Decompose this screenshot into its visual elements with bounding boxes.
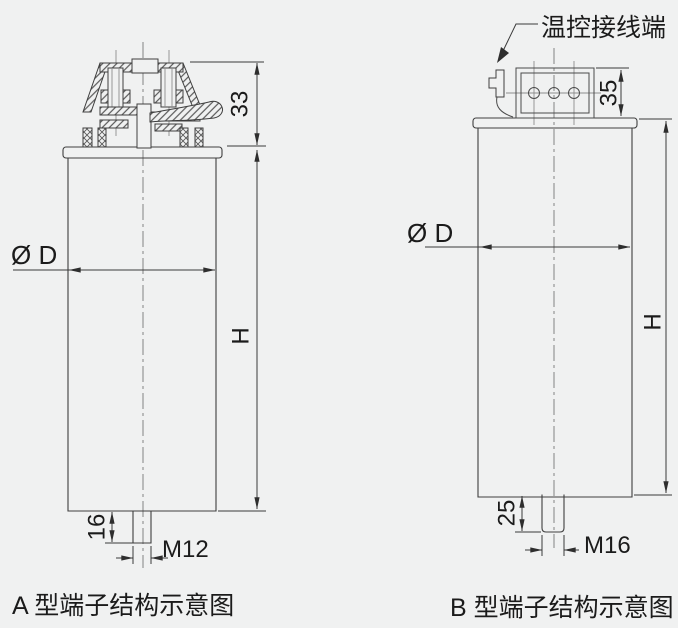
dimension-stud-length-a: 16 <box>84 512 135 543</box>
capacitor-body-b <box>473 118 637 497</box>
caption-figure-b: B 型端子结构示意图 <box>450 594 674 622</box>
dim-25-label: 25 <box>494 500 521 527</box>
terminal-a-bolt-right <box>154 68 183 107</box>
technical-drawing-page: 33 H Ø D 16 M12 A 型端子结构示意图 <box>0 0 678 628</box>
figure-b: 温控接线端 35 H Ø D 25 <box>407 14 674 622</box>
terminal-a-cap-center <box>132 59 158 73</box>
dimension-thread-a: M12 <box>116 536 209 564</box>
diagram-canvas: 33 H Ø D 16 M12 A 型端子结构示意图 <box>0 0 678 628</box>
dimension-terminal-height-b: 35 <box>596 68 630 116</box>
dimension-diameter-b: Ø D <box>407 218 630 248</box>
terminal-assembly-a <box>83 59 223 148</box>
thermal-connector-wire <box>497 97 513 117</box>
dim-h-label-b: H <box>640 313 667 330</box>
bottom-stud-a <box>133 511 151 543</box>
dim-diameter-label-b: Ø D <box>407 218 453 248</box>
annotation-arrowhead <box>497 47 509 63</box>
dim-diameter-label-a: Ø D <box>11 240 57 270</box>
dim-33-label: 33 <box>227 91 254 118</box>
caption-figure-a: A 型端子结构示意图 <box>12 592 234 620</box>
dim-35-label: 35 <box>596 80 623 107</box>
centerline-b <box>506 48 601 548</box>
dim-m16-label: M16 <box>584 532 631 559</box>
dim-m12-label: M12 <box>162 536 209 563</box>
dimension-stud-length-b: 25 <box>494 496 542 532</box>
terminal-a-center-post <box>137 104 151 148</box>
dimension-height-a: H <box>218 150 266 511</box>
thermal-connector-b <box>489 70 513 117</box>
dim-16-label: 16 <box>84 514 111 541</box>
annotation-thermal-terminal: 温控接线端 <box>497 14 666 63</box>
terminal-a-bolt-left <box>101 68 130 107</box>
bottom-stud-b <box>542 495 564 532</box>
dimension-diameter-a: Ø D <box>11 240 215 270</box>
dim-h-label-a: H <box>228 327 255 344</box>
figure-a: 33 H Ø D 16 M12 A 型端子结构示意图 <box>11 42 266 620</box>
dimension-thread-b: M16 <box>525 532 631 559</box>
annotation-label: 温控接线端 <box>541 14 666 42</box>
dimension-height-b: H <box>634 119 672 495</box>
